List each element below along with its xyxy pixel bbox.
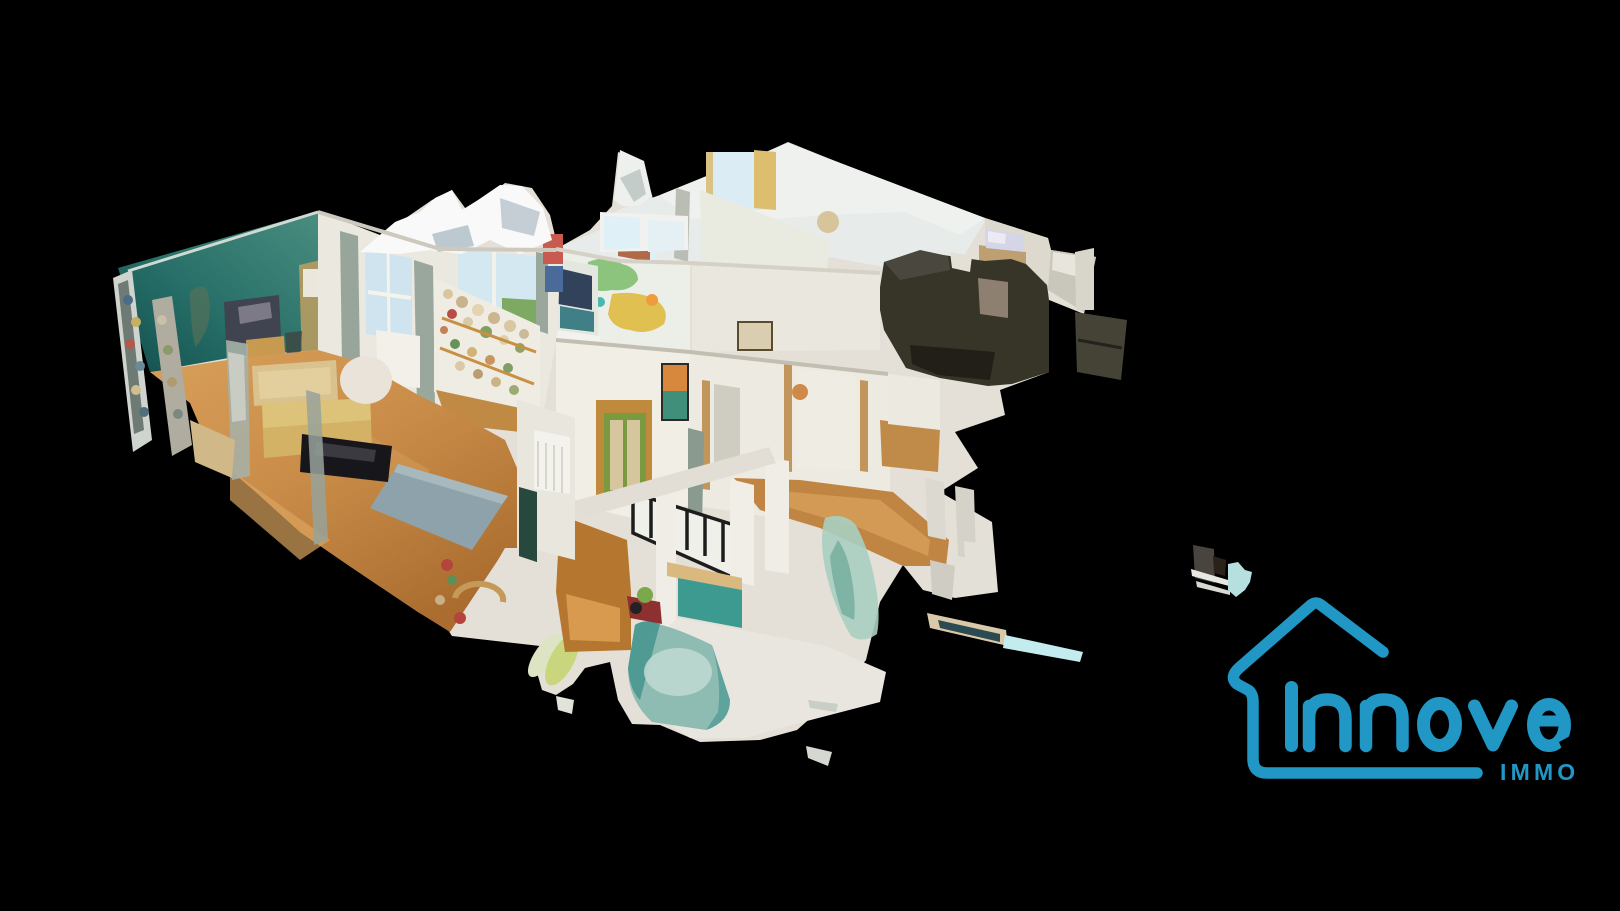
svg-text:IMMO: IMMO (1500, 759, 1579, 785)
